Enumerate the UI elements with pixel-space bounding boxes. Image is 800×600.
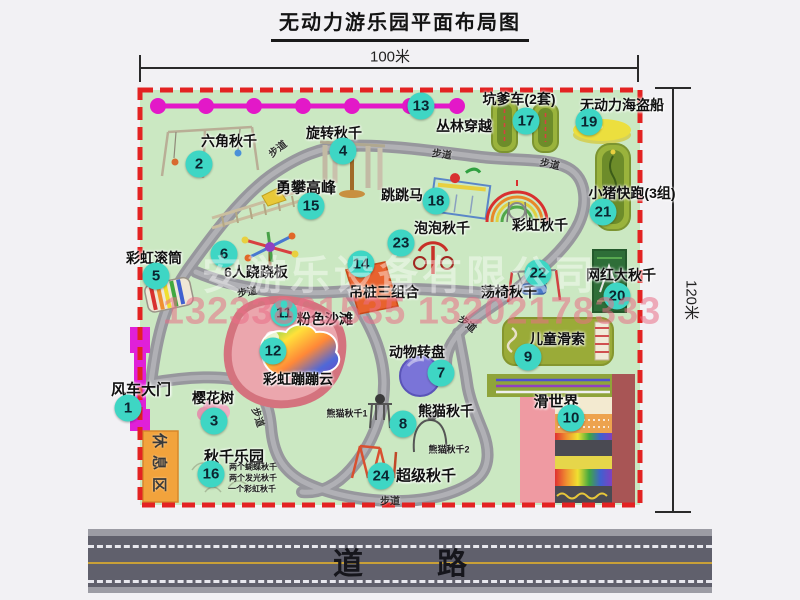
pirate-ship-structure: [573, 119, 631, 144]
page-title: 无动力游乐园平面布局图: [271, 6, 529, 42]
animal-turntable-structure: [400, 356, 440, 396]
road-curb-bottom: [88, 587, 712, 593]
big-swing-structure: [593, 250, 626, 312]
width-dimension-label: 100米: [370, 46, 410, 67]
park-map-art: [0, 0, 800, 600]
road-label: 道 路: [311, 539, 489, 583]
road-curb-top: [88, 529, 712, 536]
playground-plan-screenshot: 无动力游乐园平面布局图 100米 120米: [0, 0, 800, 600]
height-dimension-label: 120米: [682, 280, 703, 320]
pink-beach-structure: [228, 300, 343, 405]
rest-area-label: 休息区: [150, 433, 171, 499]
piggy-run-track-structure: [596, 144, 630, 230]
kids-zipline-structure: [503, 318, 613, 365]
road: 道 路: [88, 529, 712, 593]
